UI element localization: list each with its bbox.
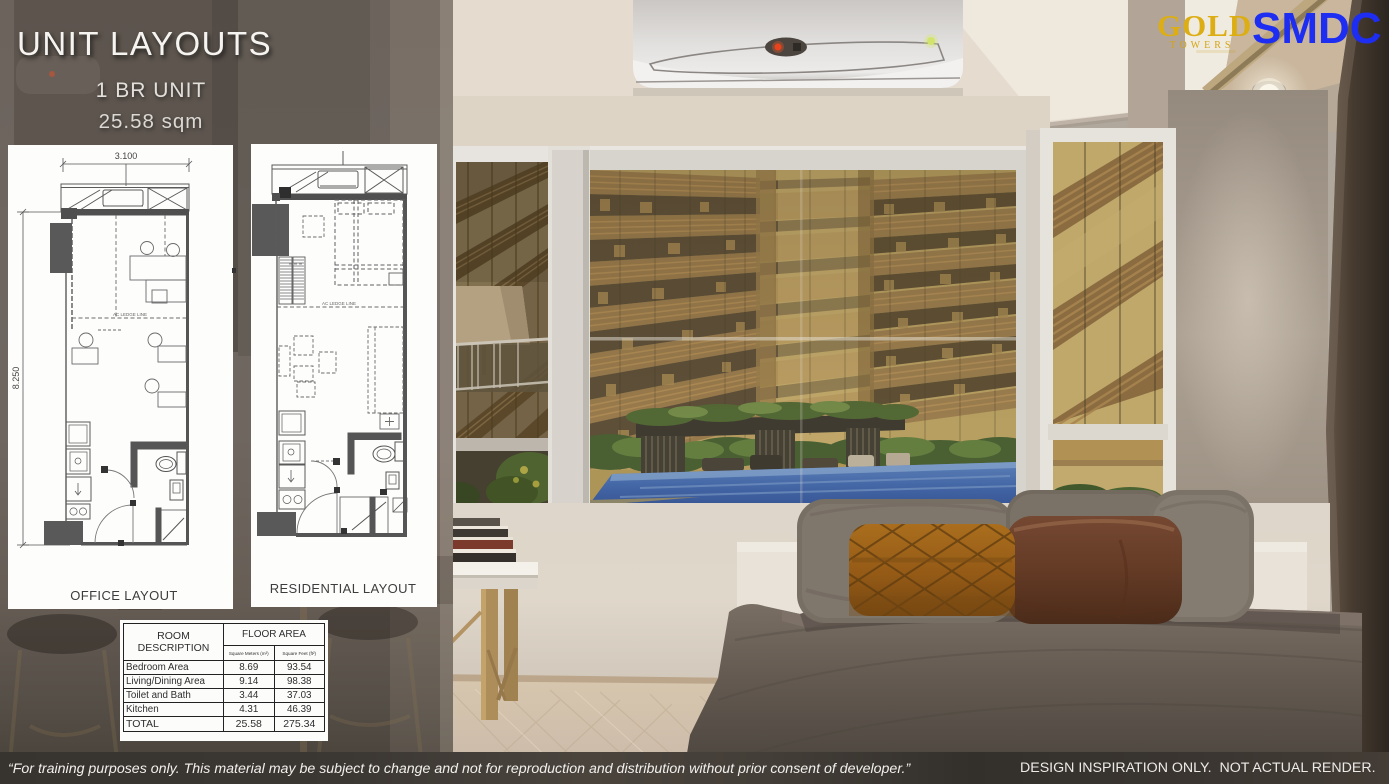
svg-text:AC LEDGE LINE: AC LEDGE LINE [113,312,147,317]
svg-text:8.250: 8.250 [11,367,21,390]
svg-text:AC LEDGE LINE: AC LEDGE LINE [322,301,356,306]
svg-text:OFFICE LAYOUT: OFFICE LAYOUT [70,588,178,603]
svg-text:3.100: 3.100 [115,151,138,161]
svg-text:RESIDENTIAL LAYOUT: RESIDENTIAL LAYOUT [270,581,417,596]
